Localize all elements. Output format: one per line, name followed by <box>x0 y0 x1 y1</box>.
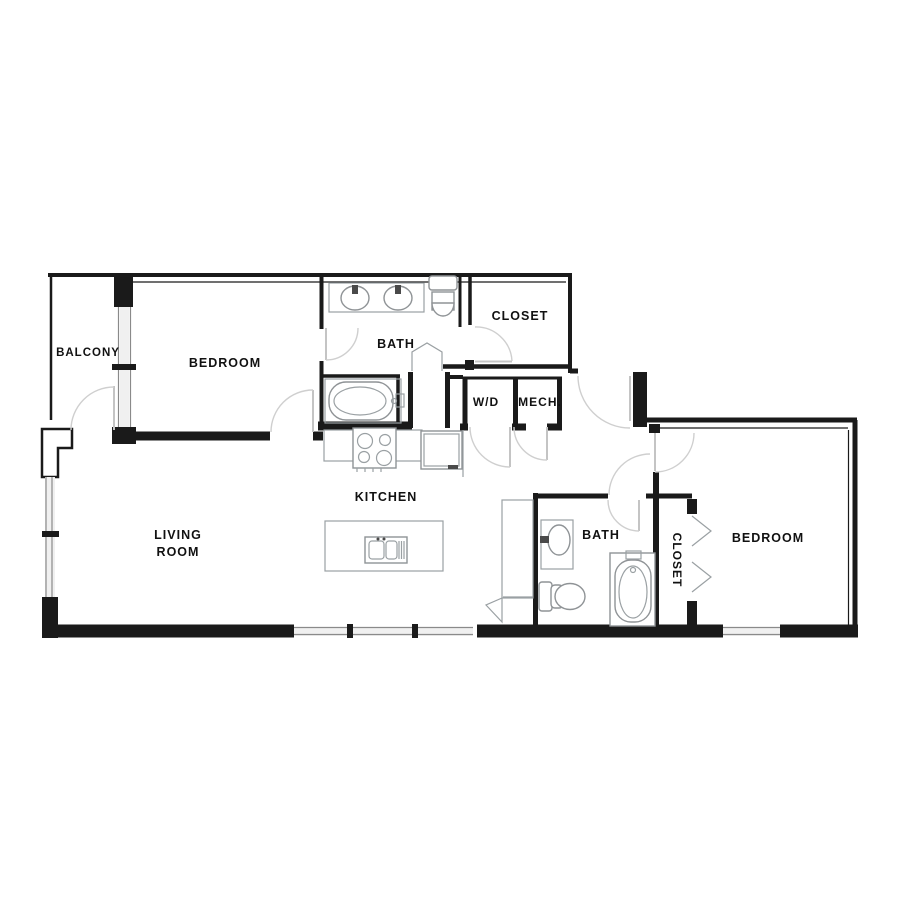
bath-1-bedroom-door <box>326 328 358 360</box>
balcony-door <box>71 386 114 430</box>
closet-1-door <box>475 327 512 362</box>
bathtub-1 <box>325 379 404 423</box>
double-vanity-sinks <box>329 283 424 312</box>
den-nook-door <box>486 598 502 622</box>
bedroom-1-door <box>271 390 313 432</box>
interior-walls <box>112 273 697 627</box>
toilet-2 <box>539 582 585 611</box>
room-label-kitchen: KITCHEN <box>355 490 418 504</box>
wall-corner-block <box>42 429 72 477</box>
bathtub-2 <box>610 551 655 626</box>
laundry-door <box>470 427 510 467</box>
floor-plan-page: BALCONY BEDROOM BATH CLOSET W/D MECH. KI… <box>0 0 900 900</box>
toilet-1 <box>429 276 457 316</box>
room-label-living-line1: LIVING <box>154 528 202 542</box>
room-label-bedroom-2: BEDROOM <box>732 531 804 545</box>
room-label-bath-2: BATH <box>582 528 620 542</box>
vanity-sink-2 <box>540 520 573 569</box>
entry-door <box>578 376 630 428</box>
room-label-bath-1: BATH <box>377 337 415 351</box>
closet-2-bifold-doors <box>692 516 711 592</box>
den-nook-cabinet <box>502 500 533 598</box>
bath-2-door <box>608 500 639 531</box>
floor-plan-drawing: BALCONY BEDROOM BATH CLOSET W/D MECH. KI… <box>0 0 900 900</box>
stove <box>353 428 396 472</box>
room-label-living-line2: ROOM <box>157 545 200 559</box>
mech-door <box>514 427 547 460</box>
kitchen-island <box>325 521 443 571</box>
refrigerator <box>421 431 462 469</box>
entry-door-frame <box>633 372 647 427</box>
bedroom-2-door <box>655 433 694 472</box>
slider-top-cap <box>114 273 133 307</box>
hall-nook-swing <box>609 454 650 495</box>
bath-1-hall-door <box>412 343 442 371</box>
room-label-closet-1: CLOSET <box>492 309 549 323</box>
room-label-balcony: BALCONY <box>56 347 120 359</box>
room-label-bedroom-1: BEDROOM <box>189 356 261 370</box>
room-label-closet-2: CLOSET <box>670 533 684 588</box>
room-label-mech: MECH. <box>518 395 562 409</box>
fixtures <box>324 276 655 626</box>
room-label-laundry: W/D <box>473 395 499 409</box>
